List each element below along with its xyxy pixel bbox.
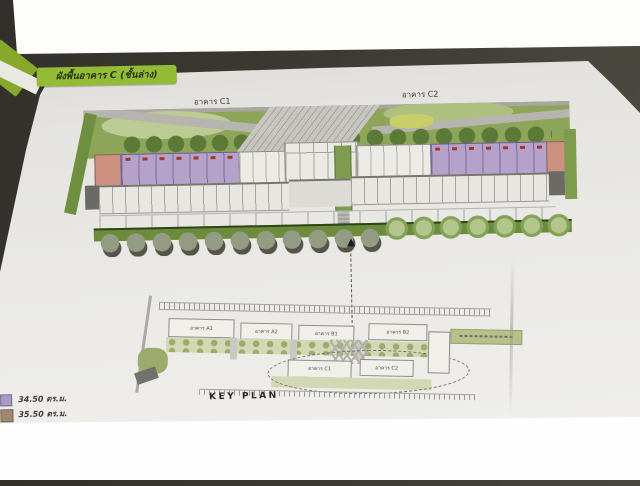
key-plan: อาคาร A1 อาคาร A2 อาคาร B1 อาคาร B2 อาคา… [141,296,535,416]
planting-patch [389,114,433,129]
legend-label-34-50: 34.50 ตร.ม. [18,392,67,406]
building-label-c2: อาคาร C2 [385,87,455,101]
c1-pink-unit [94,154,123,188]
keyplan-building-b2: อาคาร B2 [368,323,427,341]
c2-service-rooms [356,144,433,179]
left-end-block [85,185,99,209]
right-end-block [549,171,565,195]
tree-canopies-left [98,228,384,258]
c1-parking-row [99,182,290,215]
keyplan-building-a1: อาคาร A1 [168,318,234,338]
keyplan-side-building [428,331,451,373]
document-content: ผังพื้นอาคาร C (ชั้นล่าง) อาคาร C1 อาคาร… [0,0,640,486]
keyplan-strip-caption [459,335,513,338]
tree-canopies-right [384,212,573,243]
c2-parking-row [351,172,550,205]
central-parking-apron [289,178,352,207]
legend-swatch-purple [0,394,12,406]
c1-service-rooms [238,151,287,185]
page-title-banner: ผังพื้นอาคาร C (ชั้นล่าง) [36,65,176,87]
keyplan-top-road [159,302,491,317]
legend-label-35-50: 35.50 ตร.ม. [18,407,67,421]
keyplan-connector [230,337,237,359]
right-hedge [564,129,577,199]
leader-arrow-icon [347,238,355,246]
key-plan-title: KEY PLAN [209,391,279,402]
legend-swatch-pink [0,409,13,422]
photo-of-floorplan-document: { "photo": { "background_color": "#3d3a3… [0,0,640,480]
